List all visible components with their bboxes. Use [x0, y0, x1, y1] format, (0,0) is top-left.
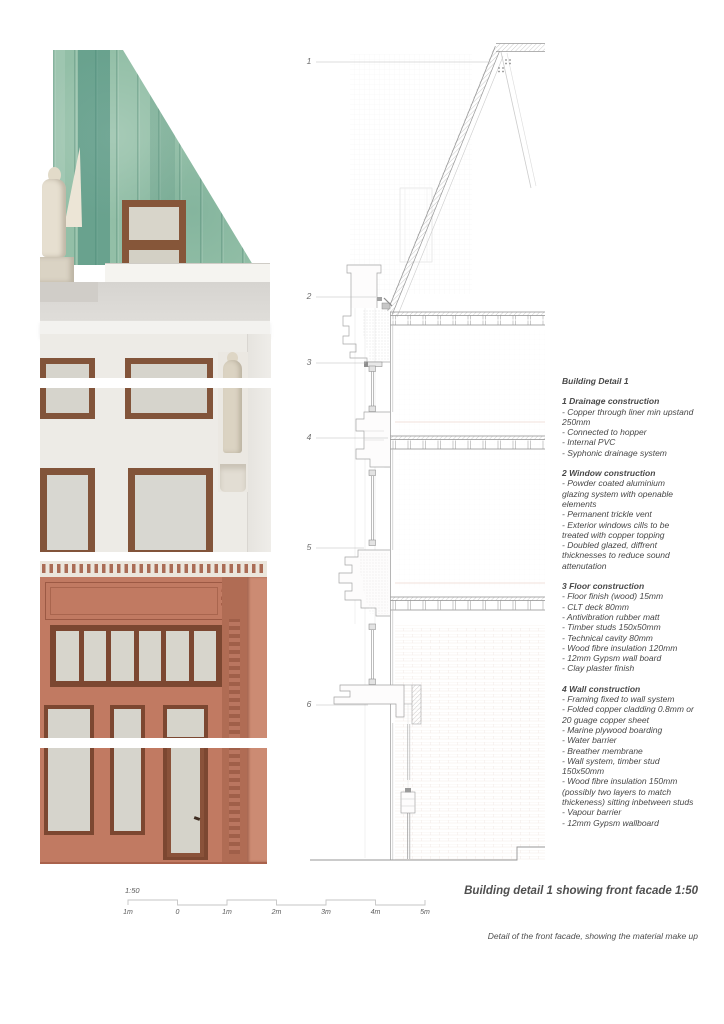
note-item: - Connected to hopper — [562, 427, 694, 437]
scale-label: 4m — [362, 909, 390, 916]
note-item: - Doubled glazed, diffrent thicknesses t… — [562, 540, 694, 571]
clerestory-panes — [56, 631, 216, 681]
window-glass — [114, 709, 141, 831]
callout-1: 1 — [302, 56, 316, 66]
note-section-window: 2 Window construction - Powder coated al… — [562, 468, 694, 571]
section-cut-gap — [37, 552, 273, 561]
note-item: - 12mm Gypsm wall board — [562, 653, 694, 663]
pilaster-return-face — [247, 577, 267, 862]
note-item: - Folded copper cladding 0.8mm or 20 gua… — [562, 704, 694, 725]
scale-label: 2m — [263, 909, 291, 916]
clerestory-window-band — [50, 625, 222, 687]
entablature-panel — [45, 582, 223, 620]
pilaster-carving — [229, 619, 240, 854]
drawing-sheet: 1 2 3 4 5 6 Building Detail 1 1 Drainage… — [0, 0, 724, 1024]
note-item: - Wood fibre insulation 150mm (possibly … — [562, 776, 694, 807]
dentil-molding — [40, 560, 267, 578]
entablature-panel-inner — [50, 587, 218, 615]
section-cut-gap — [37, 738, 273, 748]
statue-wing — [64, 147, 82, 227]
transom-window — [167, 709, 204, 737]
notes-title: Building Detail 1 — [562, 376, 694, 386]
dentil-teeth — [42, 564, 265, 573]
scale-bar-graphic — [100, 897, 440, 909]
window-glass — [129, 207, 179, 240]
shop-window-narrow — [110, 705, 145, 835]
caryatid-corbel — [220, 464, 246, 492]
note-item: - Permanent trickle vent — [562, 509, 694, 519]
statue-body — [42, 179, 66, 257]
scale-ratio: 1:50 — [125, 886, 140, 895]
section-cut-gap — [37, 378, 273, 388]
note-item: - Water barrier — [562, 735, 694, 745]
statue-base-step — [40, 282, 98, 302]
note-item: - Timber studs 150x50mm — [562, 622, 694, 632]
parapet — [105, 263, 270, 284]
note-item: - Syphonic drainage system — [562, 448, 694, 458]
note-item: - Copper through liner min upstand 250mm — [562, 407, 694, 428]
window-sill-profile — [356, 412, 390, 467]
window-glass — [135, 475, 206, 550]
note-heading: 3 Floor construction — [562, 581, 694, 591]
note-item: - Internal PVC — [562, 437, 694, 447]
callout-6: 6 — [302, 699, 316, 709]
note-item: - Exterior windows cills to be treated w… — [562, 520, 694, 541]
callout-3: 3 — [302, 357, 316, 367]
upper-window-left — [40, 358, 95, 419]
note-item: - Framing fixed to wall system — [562, 694, 694, 704]
lower-window-left — [40, 468, 95, 552]
facade-elevation — [40, 45, 270, 862]
clerestory-pane — [56, 631, 79, 681]
construction-notes: Building Detail 1 1 Drainage constructio… — [562, 376, 694, 838]
scale-label: 1m — [114, 909, 142, 916]
caryatid-statue — [218, 352, 248, 492]
note-item: - Technical cavity 80mm — [562, 633, 694, 643]
callout-2: 2 — [302, 291, 316, 301]
note-section-drainage: 1 Drainage construction - Copper through… — [562, 396, 694, 458]
lower-cornice-profile — [339, 550, 390, 616]
drawing-subtitle: Detail of the front facade, showing the … — [488, 931, 698, 941]
upper-window-right — [125, 358, 213, 419]
statue-pedestal — [40, 257, 74, 282]
clerestory-pane — [139, 631, 162, 681]
clerestory-pane — [84, 631, 107, 681]
clerestory-pane — [166, 631, 189, 681]
callout-5: 5 — [302, 542, 316, 552]
note-item: - Antivibration rubber matt — [562, 612, 694, 622]
note-section-wall: 4 Wall construction - Framing fixed to w… — [562, 684, 694, 828]
angel-statue — [40, 145, 82, 282]
note-item: - Clay plaster finish — [562, 663, 694, 673]
roof-dormer-window — [122, 200, 186, 268]
carved-pilaster — [222, 577, 247, 862]
note-heading: 4 Wall construction — [562, 684, 694, 694]
note-item: - Floor finish (wood) 15mm — [562, 591, 694, 601]
note-item: - Wood fibre insulation 120mm — [562, 643, 694, 653]
note-item: - Powder coated aluminium glazing system… — [562, 478, 694, 509]
note-item: - 12mm Gypsm wallboard — [562, 818, 694, 828]
lower-window-right — [128, 468, 213, 552]
window-glass — [131, 364, 207, 413]
drawing-title: Building detail 1 showing front facade 1… — [464, 885, 698, 897]
callout-4: 4 — [302, 432, 316, 442]
entrance-door — [167, 743, 204, 857]
note-section-floor: 3 Floor construction - Floor finish (woo… — [562, 581, 694, 674]
scale-label: 0 — [164, 909, 192, 916]
terracotta-shopfront — [40, 577, 267, 864]
entrance-door-bay — [163, 705, 208, 860]
facade-corner-pier — [247, 334, 271, 560]
note-item: - Vapour barrier — [562, 807, 694, 817]
window-glass — [47, 475, 88, 550]
scale-label: 3m — [312, 909, 340, 916]
scale-bar: 1:50 1m 0 1m 2m 3m 4m 5m — [100, 886, 445, 924]
window-glass — [46, 364, 89, 413]
clerestory-pane — [111, 631, 134, 681]
section-drawing — [300, 40, 545, 865]
note-heading: 2 Window construction — [562, 468, 694, 478]
note-item: - CLT deck 80mm — [562, 602, 694, 612]
door-glass — [171, 747, 200, 853]
window-glass — [48, 709, 90, 831]
shop-window-large — [44, 705, 94, 835]
clerestory-pane — [194, 631, 217, 681]
caryatid-figure — [223, 360, 242, 453]
scale-label: 1m — [213, 909, 241, 916]
window-glass — [129, 250, 179, 263]
note-item: - Wall system, timber stud 150x50mm — [562, 756, 694, 777]
note-item: - Breather membrane — [562, 746, 694, 756]
note-heading: 1 Drainage construction — [562, 396, 694, 406]
note-item: - Marine plywood boarding — [562, 725, 694, 735]
scale-label: 5m — [411, 909, 439, 916]
